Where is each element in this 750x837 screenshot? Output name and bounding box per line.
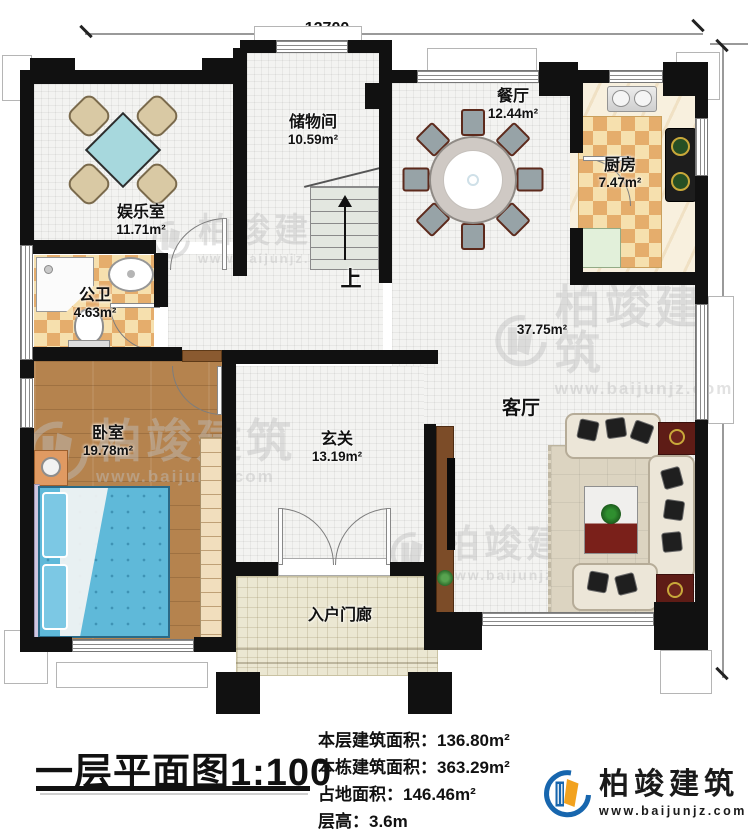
side-table-decor [667, 582, 683, 598]
room-label-storage: 储物间 10.59m² [258, 114, 368, 148]
porch-step [236, 662, 438, 664]
stat-label: 本层建筑面积： [318, 731, 437, 750]
wall [240, 40, 278, 53]
stat-value: 136.80m² [437, 731, 510, 750]
room-label-living: 客厅 [466, 398, 576, 420]
wall [20, 637, 72, 652]
stat-label: 层高： [318, 812, 369, 831]
title-underline-shadow [40, 793, 308, 795]
plant [437, 570, 453, 586]
window-sill [56, 662, 208, 688]
floor-plan: 12700 11900 柏竣建筑 www.baijunjz.com 柏竣建筑 w… [0, 0, 750, 837]
room-name: 玄关 [282, 431, 392, 449]
window [695, 304, 708, 420]
room-label-porch: 入户门廊 [265, 607, 415, 625]
room-area: 19.78m² [53, 443, 163, 459]
stairs-up-text: 上 [341, 268, 362, 291]
wall [20, 428, 34, 652]
wall [695, 70, 708, 118]
wall [379, 83, 392, 283]
wall [233, 48, 247, 276]
room-label-hall: 玄关 13.19m² [282, 431, 392, 465]
sink-drain [127, 270, 135, 278]
porch-floor [236, 576, 438, 676]
wall [695, 420, 708, 606]
stat-value: 146.46m² [403, 785, 476, 804]
pillow [42, 492, 68, 558]
room-name: 娱乐室 [86, 204, 196, 222]
room-label-kitchen: 厨房 7.47m² [565, 157, 675, 191]
wall [222, 360, 236, 652]
stat-footprint-area: 占地面积：146.46m² [318, 780, 476, 805]
window-sill [708, 296, 734, 424]
room-area: 7.47m² [565, 175, 675, 191]
stairs-arrow [344, 206, 346, 260]
porch-pillar [408, 672, 452, 714]
wall-corner [30, 58, 75, 84]
stat-building-area: 本栋建筑面积：363.29m² [318, 753, 510, 778]
room-area: 37.75m² [487, 322, 597, 338]
wall [390, 562, 436, 576]
wall [424, 612, 482, 650]
window [417, 70, 539, 83]
window-sill [660, 650, 712, 694]
room-area: 13.19m² [282, 449, 392, 465]
room-label-dining: 餐厅 12.44m² [458, 88, 568, 122]
door-leaf [278, 508, 283, 565]
wall [578, 70, 609, 83]
porch-step [236, 648, 438, 650]
stat-floor-height: 层高：3.6m [318, 807, 408, 832]
room-area: 4.63m² [40, 305, 150, 321]
dining-table-center [467, 174, 479, 186]
dimension-tick [691, 19, 704, 32]
wall [570, 83, 583, 153]
window [482, 612, 654, 626]
wardrobe [200, 437, 222, 649]
window [695, 118, 708, 176]
sink-basin [634, 90, 652, 107]
wall [20, 360, 34, 378]
wall [570, 272, 708, 285]
wall [194, 637, 236, 652]
sofa-cushion [663, 499, 686, 522]
wall [222, 350, 438, 364]
window [609, 70, 663, 83]
room-name: 餐厅 [458, 88, 568, 106]
dining-chair [461, 223, 485, 250]
room-name: 入户门廊 [265, 607, 415, 625]
stairs-arrow-head [338, 195, 352, 207]
sofa-cushion [605, 417, 628, 440]
dimension-tick [79, 25, 92, 38]
wall [379, 70, 417, 83]
stat-value: 363.29m² [437, 758, 510, 777]
side-table-decor [669, 429, 685, 445]
room-label-entertainment: 娱乐室 11.71m² [86, 204, 196, 238]
wall [154, 253, 168, 307]
window [72, 639, 194, 652]
wall-corner [365, 83, 392, 109]
room-label-bedroom: 卧室 19.78m² [53, 425, 163, 459]
logo-brand: 柏竣建筑 [599, 770, 747, 800]
window-sill [427, 48, 537, 72]
dimension-stub [710, 43, 748, 45]
company-logo: 柏竣建筑 www.baijunjz.com [541, 768, 747, 820]
room-area: 10.59m² [258, 132, 368, 148]
hall-floor [236, 366, 424, 564]
fridge [581, 228, 621, 268]
stat-floor-area: 本层建筑面积：136.80m² [318, 726, 510, 751]
stat-label: 占地面积： [318, 785, 403, 804]
title-underline [36, 786, 310, 791]
stat-value: 3.6m [369, 812, 408, 831]
wall [236, 562, 278, 576]
stat-label: 本栋建筑面积： [318, 758, 437, 777]
room-name: 卧室 [53, 425, 163, 443]
living-area-label: 37.75m² [487, 322, 597, 338]
sink-basin [612, 90, 630, 107]
stairs-label: 上 [336, 268, 366, 292]
room-area: 11.71m² [86, 222, 196, 238]
window [276, 40, 348, 53]
door-leaf [386, 508, 391, 565]
door-leaf [222, 218, 227, 270]
room-area: 12.44m² [458, 106, 568, 122]
dining-chair [517, 168, 544, 192]
wall [20, 347, 182, 361]
room-name: 公卫 [40, 287, 150, 305]
lamp [41, 457, 61, 477]
porch-pillar [216, 672, 260, 714]
wall [30, 240, 156, 254]
top-dimension-line [85, 33, 703, 35]
room-name: 客厅 [466, 398, 576, 420]
room-label-bathroom: 公卫 4.63m² [40, 287, 150, 321]
room-name: 储物间 [258, 114, 368, 132]
plant [601, 504, 621, 524]
tv [447, 458, 455, 550]
wall-pillar [654, 602, 708, 650]
window [20, 245, 33, 360]
logo-building-icon [541, 768, 591, 820]
dining-chair [403, 168, 430, 192]
stove-burner [671, 137, 690, 156]
sofa-cushion [661, 531, 683, 553]
shower-head [44, 265, 53, 274]
sofa-cushion [576, 418, 600, 442]
room-name: 厨房 [565, 157, 675, 175]
sofa-cushion [586, 570, 609, 593]
door-lintel [182, 350, 222, 362]
wall [20, 70, 34, 245]
sofa-front [572, 563, 658, 611]
logo-site: www.baijunjz.com [599, 804, 747, 818]
window [20, 378, 33, 428]
pillow [42, 564, 68, 630]
